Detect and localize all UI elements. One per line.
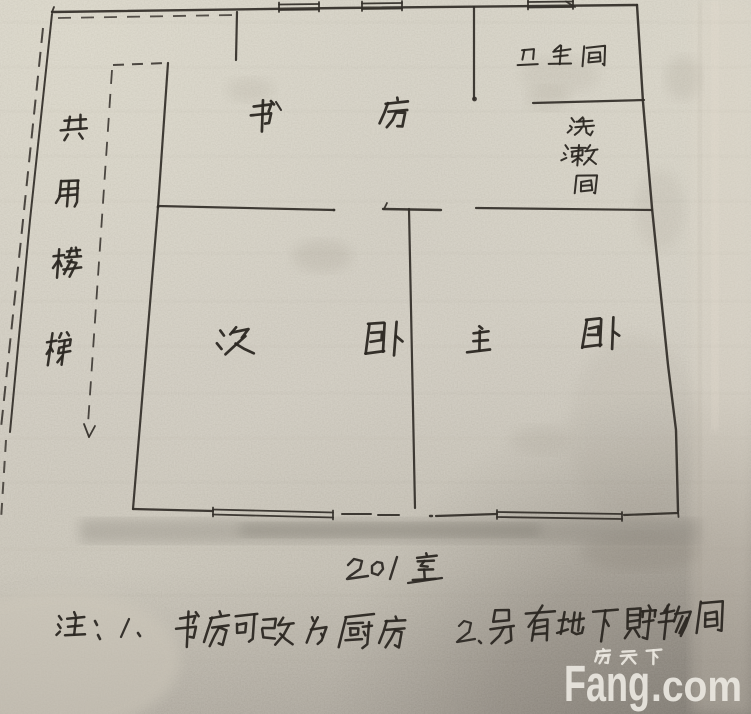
- svg-text:.com: .com: [651, 662, 742, 711]
